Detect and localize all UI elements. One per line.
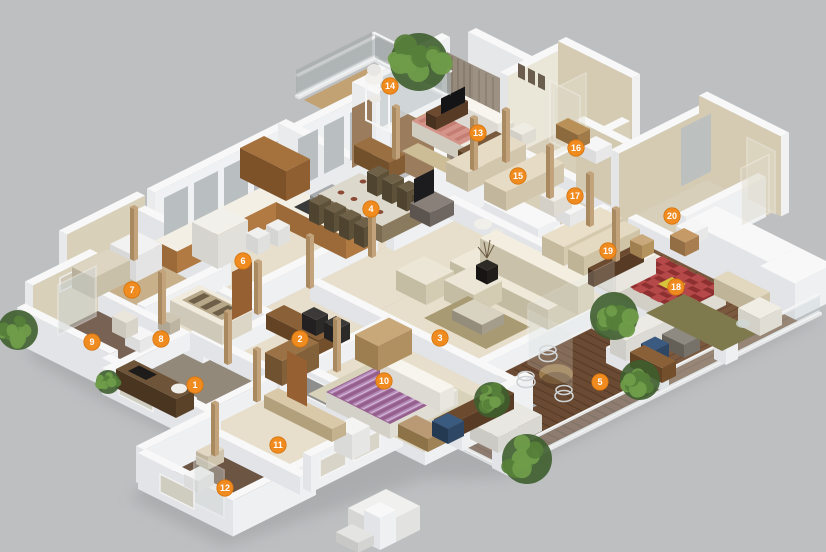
- svg-text:12: 12: [220, 483, 230, 493]
- svg-text:9: 9: [89, 337, 94, 347]
- svg-text:20: 20: [667, 211, 677, 221]
- svg-text:6: 6: [240, 256, 245, 266]
- svg-text:14: 14: [385, 81, 395, 91]
- svg-text:19: 19: [603, 246, 613, 256]
- svg-text:5: 5: [597, 377, 602, 387]
- svg-text:16: 16: [571, 143, 581, 153]
- svg-text:15: 15: [513, 171, 523, 181]
- svg-text:2: 2: [297, 334, 302, 344]
- svg-text:11: 11: [273, 440, 283, 450]
- svg-text:1: 1: [192, 380, 197, 390]
- svg-text:18: 18: [671, 282, 681, 292]
- svg-text:8: 8: [158, 334, 163, 344]
- svg-text:10: 10: [379, 376, 389, 386]
- svg-text:4: 4: [368, 204, 373, 214]
- svg-text:13: 13: [473, 128, 483, 138]
- svg-text:3: 3: [437, 333, 442, 343]
- svg-text:7: 7: [129, 285, 134, 295]
- svg-text:17: 17: [570, 191, 580, 201]
